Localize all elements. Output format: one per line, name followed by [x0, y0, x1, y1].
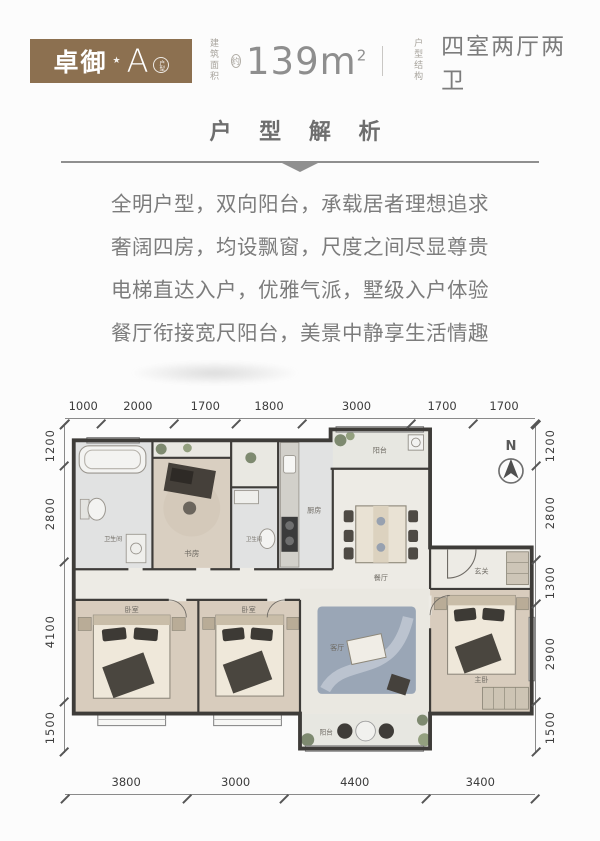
room-label-balcony-bottom: 阳台 [320, 727, 334, 736]
floorplan-area: 1000 2000 1700 1800 3000 1700 1700 1200 … [36, 389, 564, 799]
description: 全明户型，双向阳台，承载居者理想追求 奢阔四房，均设飘窗，尺度之间尽显尊贵 电梯… [0, 183, 600, 355]
dim-bottom-3: 4400 [284, 765, 426, 794]
flyer-page: 卓 御 ★ A 户型 建筑 面积 约 139m2 户型 结构 四室两厅两卫 户 … [0, 0, 600, 841]
area-sup: 2 [357, 46, 368, 64]
area-number: 139 [246, 40, 320, 83]
dim-bottom-1: 3800 [65, 765, 187, 794]
room-label-living: 客厅 [330, 643, 344, 652]
dim-chain-bottom: 3800 3000 4400 3400 [65, 765, 535, 795]
structure-value: 四室两厅两卫 [441, 27, 576, 95]
room-label-bath-2: 卫生间 [246, 535, 262, 543]
star-icon: ★ [113, 56, 121, 66]
title-rule [61, 161, 539, 163]
floorplan-drawing: 卫生间 书房 卫生间 厨房 阳台 餐厅 玄关 客厅 卧室 卧室 主卧 阳台 N [65, 425, 535, 753]
dim-top-5: 3000 [302, 389, 411, 418]
dim-right-4: 2900 [536, 604, 564, 702]
description-line: 电梯直达入户，优雅气派，墅级入户体验 [0, 269, 600, 312]
area-label-top: 建筑 [210, 39, 224, 61]
badge-unit-tag: 户型 [153, 57, 169, 73]
dim-top-4: 1800 [236, 389, 302, 418]
dim-top-6: 1700 [411, 389, 473, 418]
room-label-study: 书房 [184, 548, 200, 558]
description-line: 奢阔四房，均设飘窗，尺度之间尽显尊贵 [0, 226, 600, 269]
kitchen-fixtures [280, 442, 299, 567]
room-label-bedroom-2: 卧室 [242, 605, 256, 614]
room-label-master: 主卧 [474, 675, 488, 684]
dim-top-1: 1000 [65, 389, 101, 418]
room-label-foyer: 玄关 [474, 567, 488, 576]
room-label-bedroom-1: 卧室 [125, 605, 139, 614]
north-compass-icon: N [499, 439, 523, 483]
page-title: 户 型 解 析 [0, 114, 600, 146]
dim-chain-left: 1200 2800 4100 1500 [36, 425, 65, 753]
triangle-down-icon [282, 163, 318, 172]
area-label-bottom: 面积 [210, 61, 224, 83]
dim-right-1: 1200 [536, 425, 564, 466]
room-label-balcony-top: 阳台 [373, 445, 387, 454]
approx-circle-icon: 约 [231, 54, 241, 68]
structure-label-bottom: 结构 [414, 61, 432, 83]
area-label: 建筑 面积 [210, 39, 224, 83]
room-label-dining: 餐厅 [374, 573, 388, 582]
header: 卓 御 ★ A 户型 建筑 面积 约 139m2 户型 结构 四室两厅两卫 [30, 38, 576, 84]
dim-bottom-4: 3400 [426, 765, 535, 794]
dim-chain-top: 1000 2000 1700 1800 3000 1700 1700 [65, 389, 535, 419]
area-unit: m [320, 40, 357, 83]
dim-bottom-2: 3000 [187, 765, 284, 794]
structure-spec: 户型 结构 四室两厅两卫 [414, 27, 576, 95]
room-label-bath-1: 卫生间 [104, 535, 122, 543]
compass-n-label: N [505, 439, 516, 454]
floor-bay-bath2 [231, 440, 278, 487]
badge-name-char2: 御 [81, 43, 108, 79]
dim-right-2: 2800 [536, 466, 564, 561]
dim-chain-right: 1200 2800 1300 2900 1500 [535, 425, 564, 753]
section-head: 户 型 解 析 [0, 114, 600, 163]
description-line: 餐厅衔接宽尺阳台，美景中静享生活情趣 [0, 312, 600, 355]
badge-name-char1: 卓 [54, 43, 81, 79]
dim-top-2: 2000 [101, 389, 174, 418]
area-value: 139m2 [246, 43, 367, 80]
badge-unit-letter: A [127, 42, 149, 80]
bedroom-1-furniture [78, 615, 185, 698]
dim-right-3: 1300 [536, 560, 564, 604]
header-divider [382, 46, 383, 76]
dim-right-5: 1500 [536, 702, 564, 753]
dim-left-2: 2800 [36, 466, 64, 562]
dim-left-1: 1200 [36, 425, 64, 466]
structure-label: 户型 结构 [414, 39, 432, 83]
structure-label-top: 户型 [414, 39, 432, 61]
dim-top-7: 1700 [473, 389, 535, 418]
dim-left-3: 4100 [36, 562, 64, 702]
watermark-smudge [130, 361, 300, 385]
unit-badge: 卓 御 ★ A 户型 [30, 39, 192, 83]
dim-left-4: 1500 [36, 702, 64, 753]
description-line: 全明户型，双向阳台，承载居者理想追求 [0, 183, 600, 226]
room-label-kitchen: 厨房 [307, 505, 321, 514]
area-spec: 建筑 面积 约 139m2 [210, 39, 367, 83]
dim-top-3: 1700 [174, 389, 236, 418]
